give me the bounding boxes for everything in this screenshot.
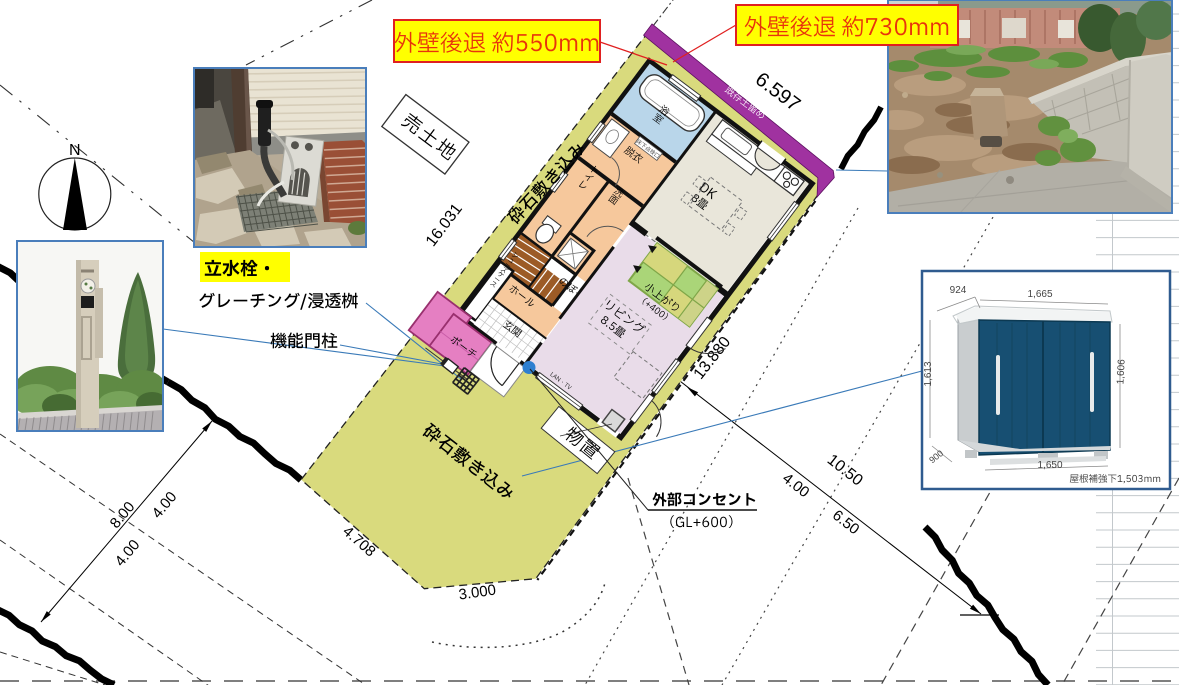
svg-text:N: N	[69, 142, 81, 159]
svg-text:1,613: 1,613	[923, 361, 934, 386]
svg-text:1,650: 1,650	[1037, 460, 1062, 471]
svg-text:1,665: 1,665	[1027, 289, 1052, 300]
svg-text:1,606: 1,606	[1115, 359, 1127, 385]
svg-text:924: 924	[950, 285, 967, 296]
